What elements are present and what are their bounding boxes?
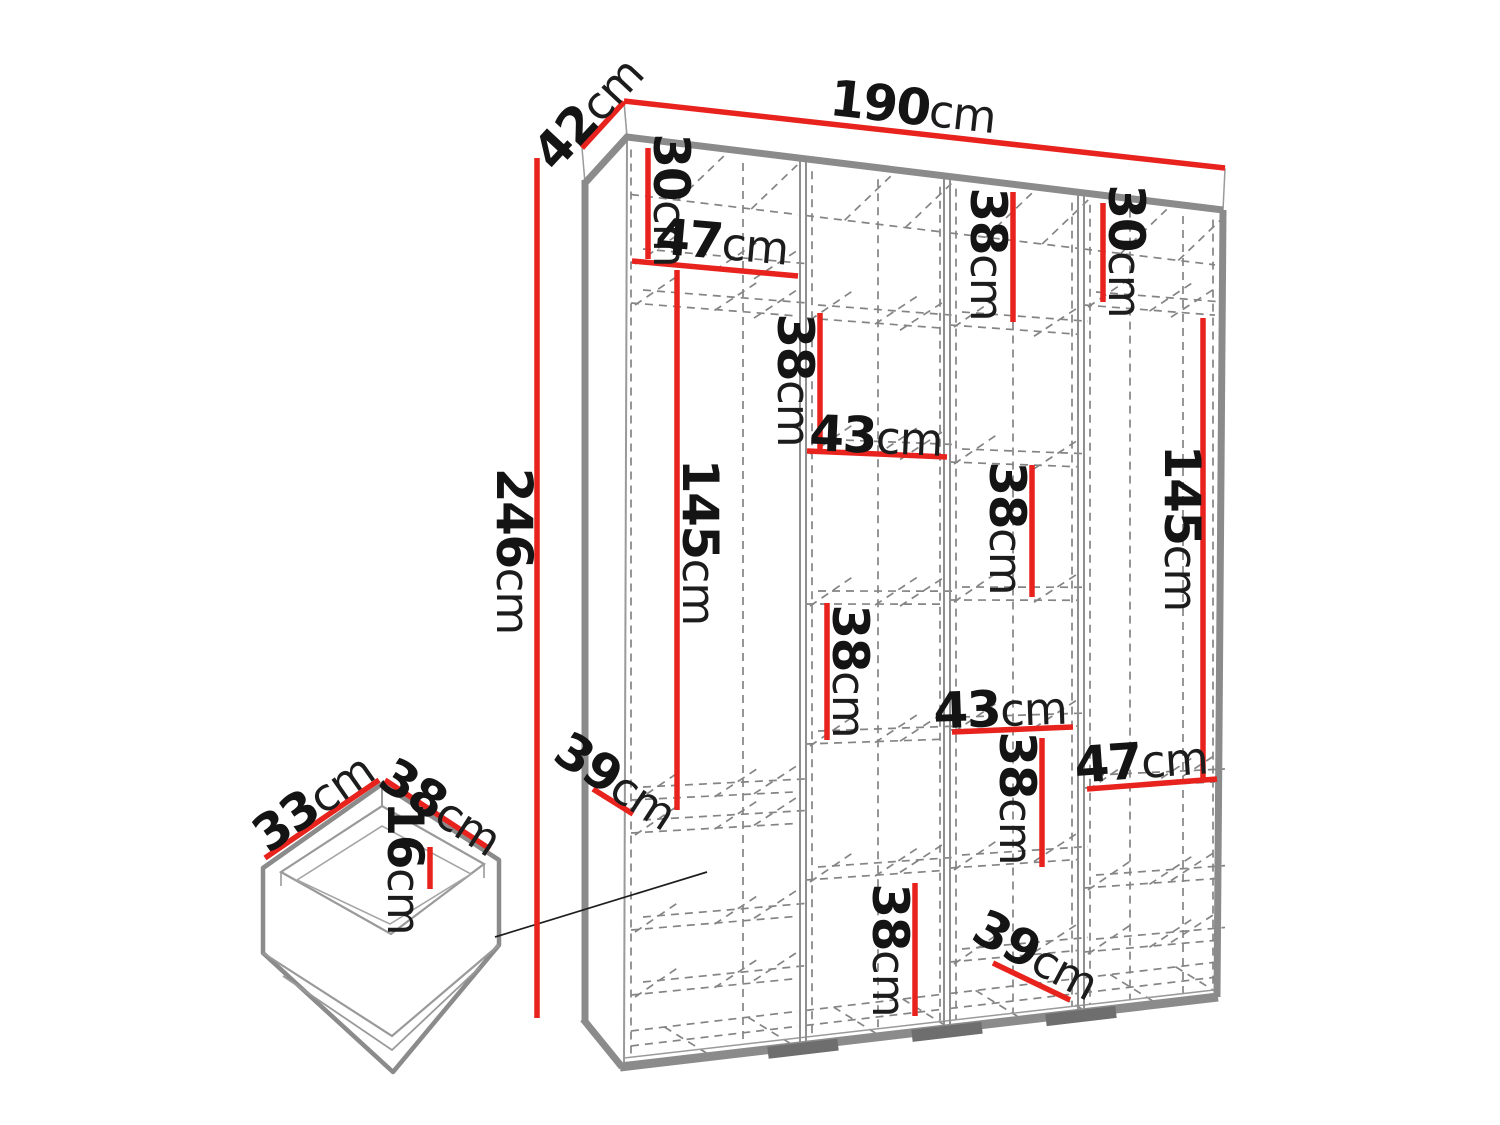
dim-label-col3-lower-height: 38cm [988, 731, 1046, 864]
diagram-page: 190cm 42cm 246cm 30cm 47cm 145cm 39cm 38… [0, 0, 1500, 1125]
dim-label-col4-shelf-width: 47cm [1073, 727, 1210, 794]
dim-label-overall-height: 246cm [485, 468, 543, 634]
dim-label-col1-shelf-depth: 39cm [544, 720, 687, 841]
dim-label-col3-shelf-depth: 39cm [964, 898, 1109, 1012]
dim-label-col2-bottom-height: 38cm [861, 883, 919, 1016]
dim-label-drawer-height: 16cm [376, 801, 434, 934]
dim-label-col3-top-height: 38cm [959, 187, 1017, 320]
wardrobe-dimension-diagram: 190cm 42cm 246cm 30cm 47cm 145cm 39cm 38… [0, 0, 1500, 1125]
dim-label-col4-hanging-height: 145cm [1153, 445, 1211, 611]
dim-label-col1-hanging-height: 145cm [671, 459, 729, 625]
dim-label-col2-shelf-width: 43cm [808, 404, 944, 468]
right-outer-edge [1217, 210, 1223, 997]
floor-front-edge [624, 990, 1214, 1058]
dim-label-col2-mid-height: 38cm [821, 604, 879, 737]
divider-feet [768, 1012, 1116, 1053]
dim-label-col4-top-height: 30cm [1097, 184, 1155, 317]
front-left-inner-edge [624, 140, 627, 1062]
dim-label-col3-mid-height: 38cm [978, 461, 1036, 594]
left-bottom-corner-edge [583, 1019, 622, 1067]
dim-label-col1-shelf-width: 47cm [653, 207, 791, 276]
